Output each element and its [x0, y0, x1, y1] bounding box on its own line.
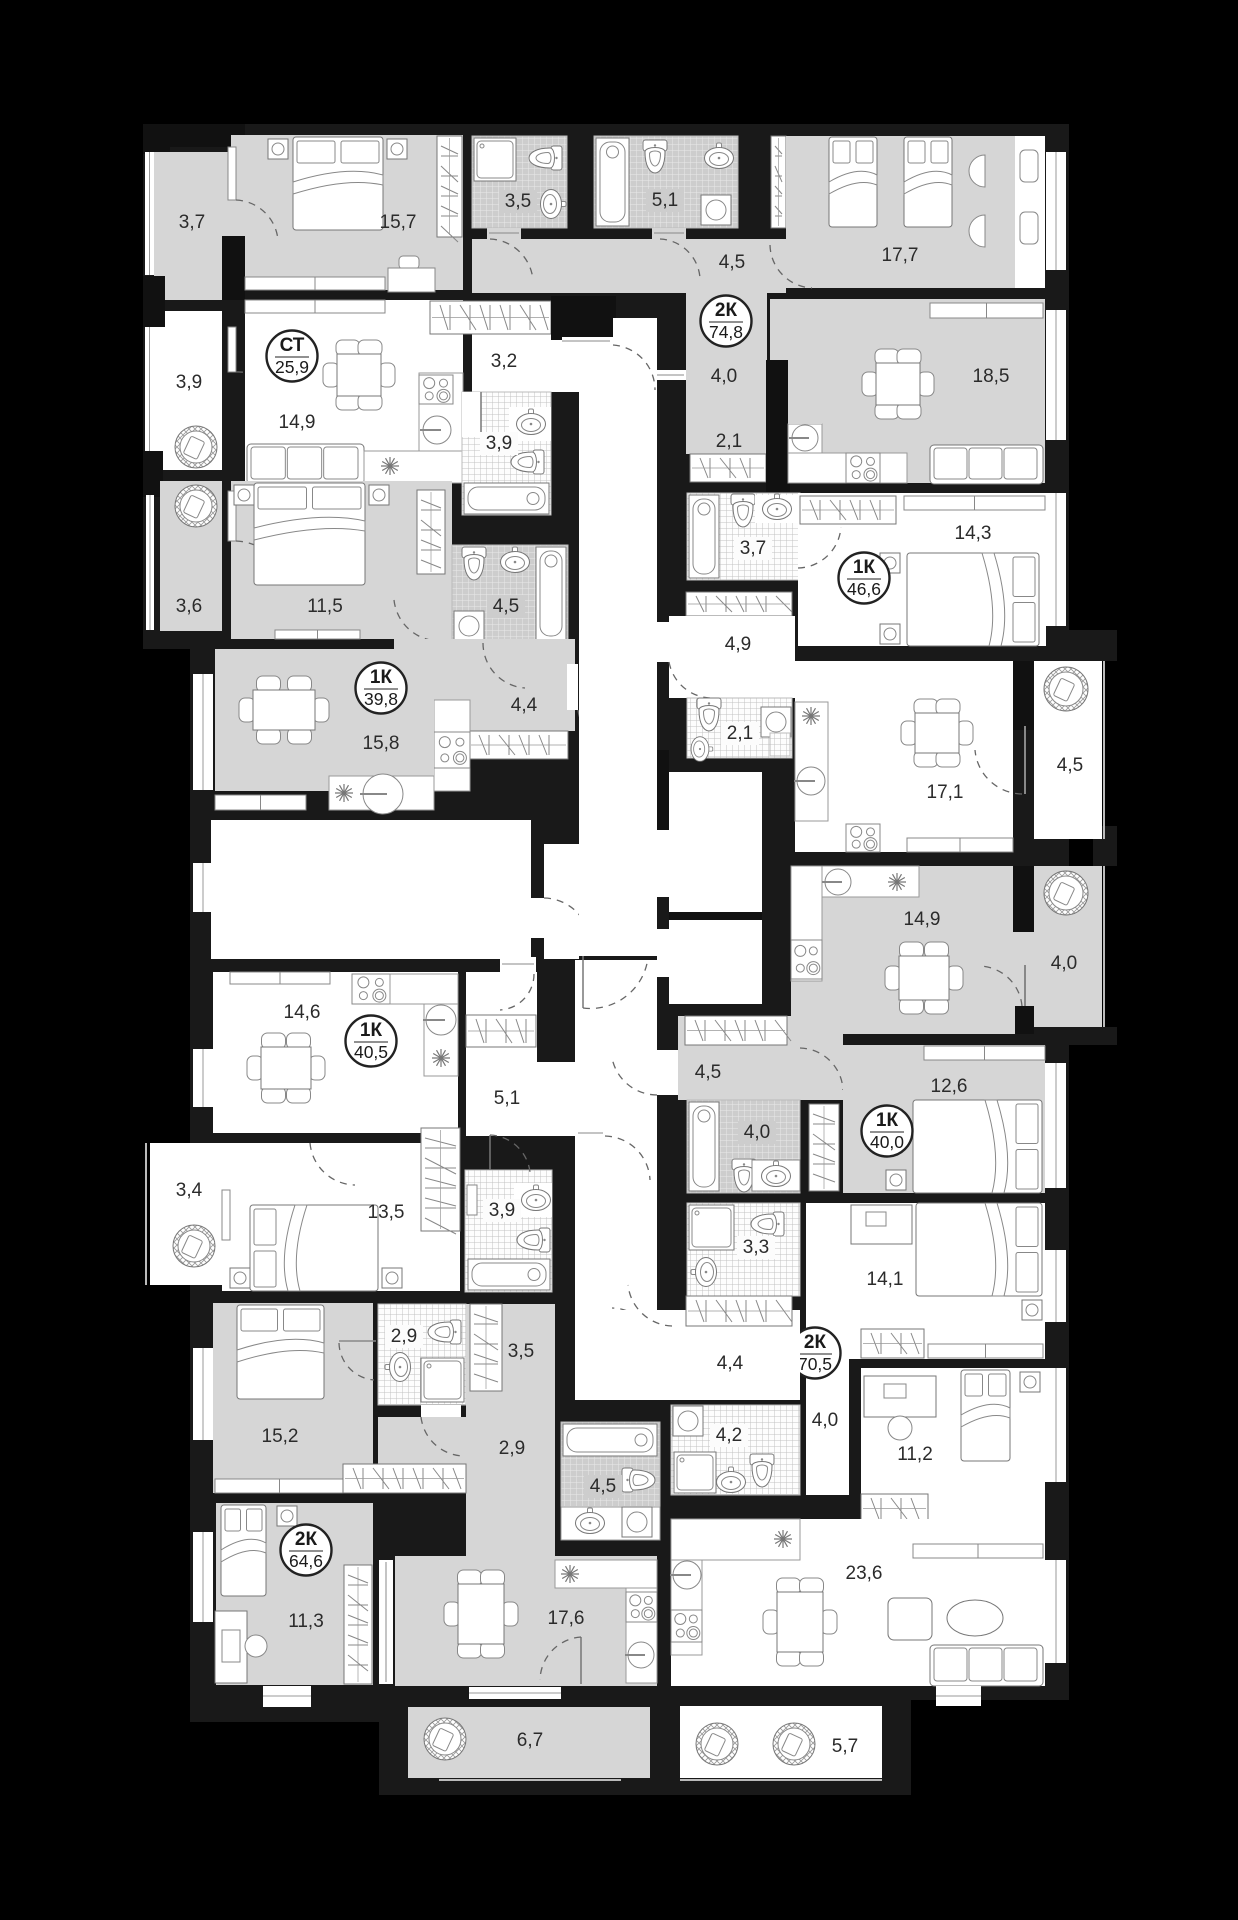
svg-text:1К: 1К	[370, 667, 393, 688]
svg-text:5,7: 5,7	[832, 1736, 858, 1757]
svg-text:3,3: 3,3	[743, 1237, 769, 1258]
svg-text:3,9: 3,9	[176, 372, 202, 393]
svg-text:3,4: 3,4	[176, 1180, 203, 1201]
svg-text:2,1: 2,1	[727, 723, 753, 744]
svg-text:17,7: 17,7	[882, 245, 919, 266]
svg-text:6,7: 6,7	[517, 1730, 543, 1751]
svg-text:2К: 2К	[715, 300, 738, 321]
svg-text:1К: 1К	[853, 557, 876, 578]
svg-text:3,5: 3,5	[505, 191, 531, 212]
svg-text:2,9: 2,9	[391, 1326, 417, 1347]
svg-text:11,2: 11,2	[897, 1444, 933, 1465]
svg-text:2,1: 2,1	[716, 431, 742, 452]
svg-text:2,9: 2,9	[499, 1438, 525, 1459]
svg-text:3,7: 3,7	[179, 212, 205, 233]
svg-text:5,1: 5,1	[652, 190, 678, 211]
svg-text:15,7: 15,7	[380, 212, 417, 233]
svg-text:70,5: 70,5	[798, 1354, 832, 1374]
svg-text:4,0: 4,0	[744, 1122, 770, 1143]
svg-text:4,2: 4,2	[716, 1425, 742, 1446]
svg-text:74,8: 74,8	[709, 322, 743, 342]
svg-text:15,2: 15,2	[262, 1426, 299, 1447]
svg-text:3,7: 3,7	[740, 538, 766, 559]
svg-text:4,4: 4,4	[717, 1353, 744, 1374]
svg-text:4,9: 4,9	[725, 634, 751, 655]
svg-text:14,1: 14,1	[867, 1269, 904, 1290]
svg-text:4,5: 4,5	[719, 252, 745, 273]
svg-text:23,6: 23,6	[846, 1563, 883, 1584]
svg-text:4,4: 4,4	[511, 695, 538, 716]
svg-text:СТ: СТ	[280, 335, 305, 356]
svg-text:5,1: 5,1	[494, 1088, 520, 1109]
svg-text:2К: 2К	[295, 1529, 318, 1550]
svg-text:40,0: 40,0	[870, 1132, 904, 1152]
svg-text:4,0: 4,0	[711, 366, 737, 387]
svg-text:13,5: 13,5	[368, 1202, 405, 1223]
svg-text:4,5: 4,5	[590, 1476, 616, 1497]
svg-text:2К: 2К	[804, 1332, 827, 1353]
svg-text:3,2: 3,2	[491, 351, 517, 372]
svg-text:25,9: 25,9	[275, 357, 309, 377]
svg-text:46,6: 46,6	[847, 579, 881, 599]
svg-text:14,6: 14,6	[284, 1002, 321, 1023]
svg-text:12,6: 12,6	[931, 1076, 968, 1097]
svg-text:14,3: 14,3	[955, 523, 992, 544]
svg-text:11,5: 11,5	[307, 596, 343, 617]
svg-text:4,0: 4,0	[1051, 953, 1077, 974]
svg-text:64,6: 64,6	[289, 1551, 323, 1571]
svg-text:3,9: 3,9	[486, 433, 512, 454]
svg-text:17,1: 17,1	[927, 782, 964, 803]
svg-text:1К: 1К	[876, 1110, 899, 1131]
svg-text:1К: 1К	[360, 1020, 383, 1041]
svg-text:3,5: 3,5	[508, 1341, 534, 1362]
svg-text:3,6: 3,6	[176, 596, 202, 617]
svg-text:4,5: 4,5	[493, 596, 519, 617]
svg-text:39,8: 39,8	[364, 689, 398, 709]
svg-text:4,5: 4,5	[695, 1062, 721, 1083]
svg-text:4,5: 4,5	[1057, 755, 1083, 776]
svg-text:11,3: 11,3	[288, 1611, 324, 1632]
svg-text:14,9: 14,9	[279, 412, 316, 433]
svg-text:17,6: 17,6	[548, 1608, 585, 1629]
svg-text:40,5: 40,5	[354, 1042, 388, 1062]
svg-text:3,9: 3,9	[489, 1200, 515, 1221]
svg-text:4,0: 4,0	[812, 1410, 838, 1431]
svg-text:14,9: 14,9	[904, 909, 941, 930]
svg-text:18,5: 18,5	[973, 366, 1010, 387]
svg-text:15,8: 15,8	[363, 733, 400, 754]
